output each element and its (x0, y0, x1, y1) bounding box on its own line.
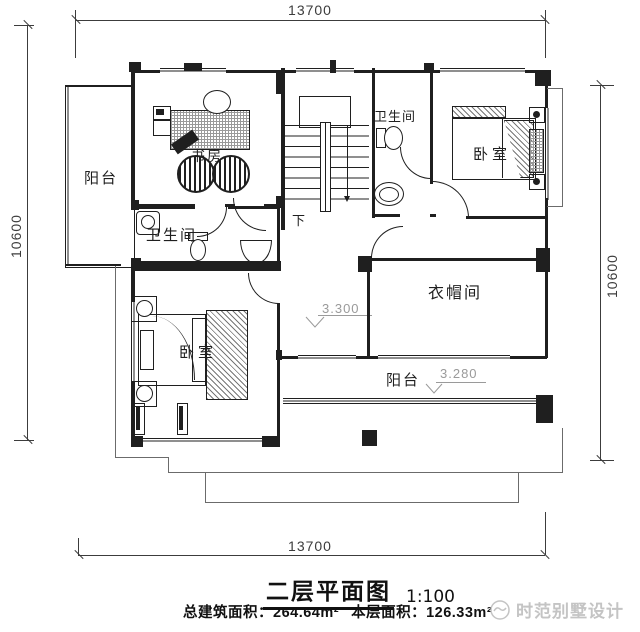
nightstand-dot (533, 178, 540, 185)
nightstand-dot (533, 111, 540, 118)
dim-left-label: 10600 (8, 214, 24, 258)
extension-line (545, 512, 546, 555)
dimension-line-left (27, 25, 28, 440)
bay-outline (547, 88, 563, 89)
headboard-shelf (452, 106, 506, 118)
dim-bottom-label: 13700 (280, 538, 340, 554)
window (143, 438, 262, 443)
plant (136, 300, 153, 317)
window (545, 108, 550, 200)
dim-right-label: 10600 (604, 254, 620, 298)
terrace-line (205, 472, 206, 503)
door-arc (248, 273, 279, 304)
extension-line (75, 10, 76, 58)
wall (367, 272, 370, 358)
column (358, 256, 372, 272)
column (535, 70, 551, 86)
terrace-line (115, 457, 169, 458)
balcony-railing (65, 87, 70, 264)
room-label-balcony-left: 阳台 (84, 167, 118, 188)
column (276, 196, 283, 208)
elevation-marker-icon (425, 383, 443, 394)
balcony-railing (283, 398, 541, 404)
radiator (529, 129, 544, 173)
room-label-closet: 衣帽间 (428, 279, 482, 303)
cabinet-detail (156, 109, 164, 115)
watermark-text: 时范别墅设计 (516, 597, 624, 622)
door-arc (400, 147, 431, 179)
extension-line (14, 25, 34, 26)
floor-plan-canvas: 13700 13700 10600 10600 阳台 书房 (0, 0, 640, 632)
room-label-bedroom-top: 卧室 (473, 143, 511, 164)
column (424, 63, 434, 72)
stair-handrail (320, 122, 331, 212)
wall (372, 214, 400, 217)
elevation-marker-icon (305, 316, 325, 328)
bay-outline (547, 206, 563, 207)
watermark-logo-icon (489, 599, 511, 621)
column (536, 248, 550, 272)
door-arc (371, 226, 403, 258)
door-arc (432, 181, 469, 218)
terrace-line (562, 428, 563, 473)
elevation-balcony: 3.280 (440, 366, 478, 381)
watermark: 时范别墅设计 (489, 597, 624, 622)
arrow-head-icon (344, 196, 350, 202)
column (276, 70, 285, 94)
terrace-line (168, 472, 563, 473)
extension-line (590, 85, 614, 86)
elevation-hall: 3.300 (322, 301, 360, 316)
wall (131, 206, 195, 209)
column (131, 258, 141, 270)
column (362, 430, 377, 446)
room-label-bath-mid: 卫生间 (146, 224, 197, 245)
window (440, 68, 525, 73)
door-arc (197, 207, 227, 237)
wall (466, 216, 547, 219)
wall (277, 206, 280, 263)
wall (131, 68, 135, 208)
total-area-text: 总建筑面积：264.64m² (183, 601, 339, 622)
dimension-line-top (75, 20, 545, 21)
column (536, 395, 553, 423)
door-arc (233, 198, 266, 231)
cabinet (153, 120, 171, 136)
office-chair (203, 90, 231, 114)
dimension-line-right (600, 85, 601, 460)
cabinet-bar-fill (179, 406, 183, 430)
dimension-line-bottom (78, 555, 545, 556)
wall (277, 303, 280, 439)
stairs-down-label: 下 (292, 210, 307, 229)
column (330, 60, 336, 73)
bay-outline (562, 88, 563, 207)
cabinet-bar-fill (136, 406, 140, 430)
column (262, 436, 280, 447)
column (129, 62, 141, 72)
window (298, 355, 356, 360)
area-summary: 总建筑面积：264.64m² 本层面积：126.33m² (183, 601, 492, 622)
column (276, 350, 282, 360)
room-label-balcony-bottom: 阳台 (386, 369, 420, 390)
terrace-line (168, 457, 169, 473)
terrace-line (518, 472, 519, 503)
terrace-line (205, 502, 519, 503)
column (131, 436, 143, 447)
terrace-line (115, 266, 116, 458)
wall (65, 85, 135, 87)
wall (364, 258, 547, 261)
column (131, 200, 139, 210)
stair-direction-arrow (347, 126, 348, 196)
window (378, 355, 510, 360)
wall (545, 198, 548, 358)
wash-basin-bowl (379, 187, 399, 202)
extension-line (590, 460, 614, 461)
column (184, 63, 202, 71)
extension-line (78, 538, 79, 555)
room-label-study: 书房 (191, 146, 223, 166)
extension-line (545, 10, 546, 58)
room-label-bedroom-bottom: 卧室 (179, 341, 217, 362)
plant (136, 385, 153, 402)
room-label-bath-top: 卫生间 (374, 106, 416, 125)
window (296, 68, 354, 73)
wall (65, 264, 121, 266)
floor-area-text: 本层面积：126.33m² (351, 601, 492, 622)
extension-line (14, 440, 34, 441)
dim-top-label: 13700 (280, 2, 340, 18)
elevation-line (436, 382, 486, 383)
